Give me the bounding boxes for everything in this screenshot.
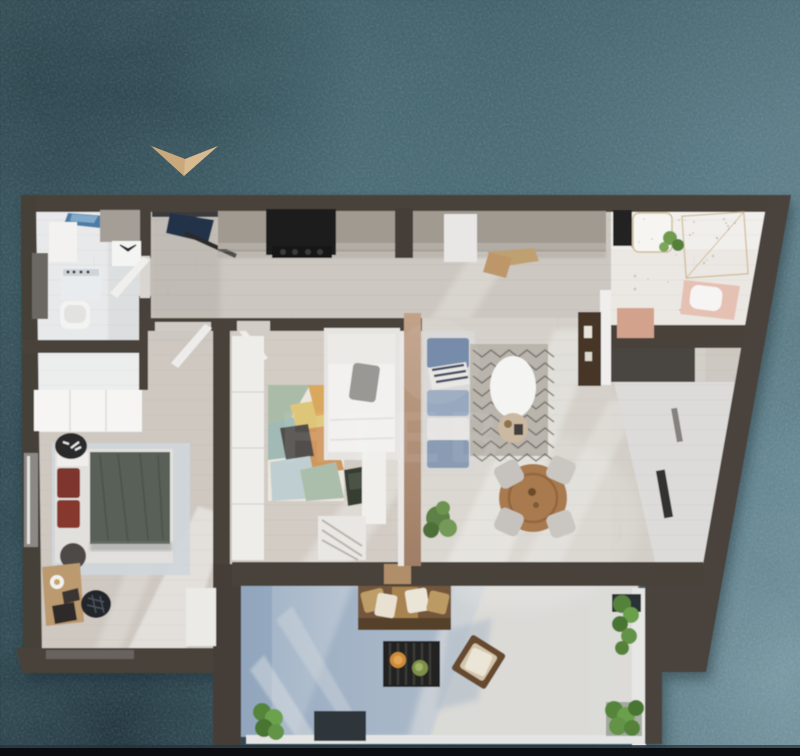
svg-text:HTEB: HTEB <box>280 398 508 478</box>
